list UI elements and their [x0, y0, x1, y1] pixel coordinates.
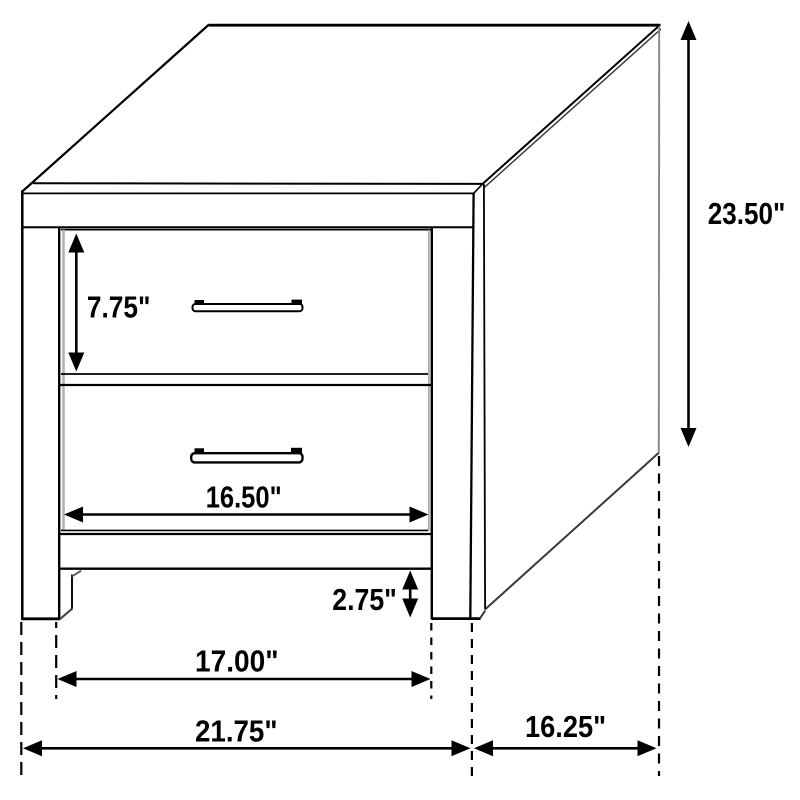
svg-text:23.50": 23.50"	[708, 197, 786, 231]
svg-text:7.75": 7.75"	[87, 291, 150, 325]
svg-text:16.25": 16.25"	[525, 710, 606, 744]
svg-text:21.75": 21.75"	[195, 715, 278, 749]
svg-text:17.00": 17.00"	[195, 645, 279, 679]
svg-text:2.75": 2.75"	[332, 583, 397, 617]
svg-text:16.50": 16.50"	[206, 481, 282, 515]
